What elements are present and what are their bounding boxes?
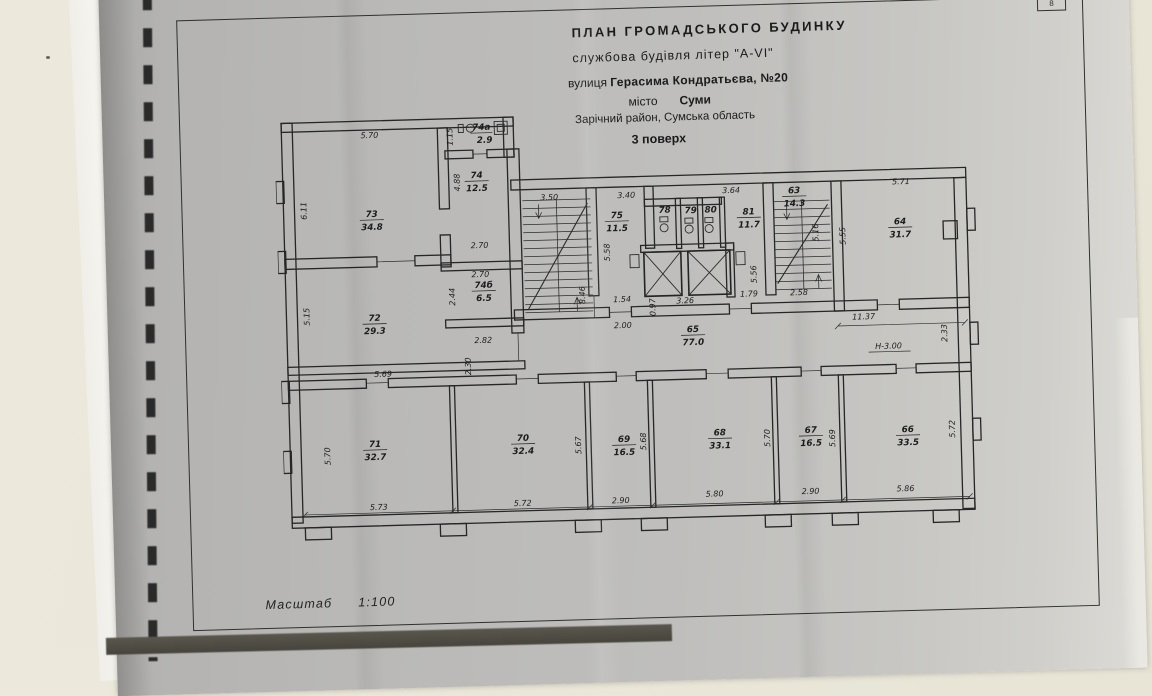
dim-label: 5.86 xyxy=(896,484,914,493)
dim-label: 2.82 xyxy=(474,336,492,345)
room-area: 11.7 xyxy=(738,220,761,231)
room-area: 31.7 xyxy=(889,230,912,241)
dim-label: 4.88 xyxy=(453,174,462,192)
room-area: 32.4 xyxy=(512,447,534,458)
toilet-icon xyxy=(660,217,668,232)
dim-label: 2.90 xyxy=(612,496,630,505)
room-number: 63 xyxy=(788,186,801,196)
dim-label: 2.33 xyxy=(940,324,949,342)
dim-label: 5.67 xyxy=(574,435,584,454)
paper-edge-curl xyxy=(1114,318,1148,669)
dim-label: 1.79 xyxy=(740,289,758,298)
room-area: 16.5 xyxy=(613,448,635,459)
dim-label: 5.71 xyxy=(892,177,910,186)
city-label: місто xyxy=(628,94,657,109)
toilet-icon xyxy=(685,218,693,233)
dim-label: 5.56 xyxy=(749,265,758,283)
room-number: 75 xyxy=(611,211,624,221)
dim-label: 5.70 xyxy=(323,447,332,465)
dim-label: 5.69 xyxy=(828,429,837,447)
dim-label: 5.15 xyxy=(302,308,311,326)
height-mark: Н-3.00 xyxy=(875,341,902,351)
dim-label: 3.64 xyxy=(722,186,740,195)
dim-label: 5.55 xyxy=(838,227,847,245)
dim-label: 5.70 xyxy=(763,429,772,447)
room-area: 14.3 xyxy=(784,199,806,210)
dim-label: 8.46 xyxy=(578,286,587,304)
drawing-border-frame: 8 xyxy=(176,0,1100,631)
room-number: 80 xyxy=(704,205,717,215)
dim-label: 2.70 xyxy=(470,241,488,250)
scale-label: Масштаб xyxy=(265,596,332,612)
room-number: 65 xyxy=(687,325,700,335)
street-line: вулиця Герасима Кондратьєва, №20 xyxy=(568,70,788,90)
elevator-shaft-right xyxy=(688,250,731,295)
toilet-icon xyxy=(705,217,713,232)
sheet-number-box: 8 xyxy=(1037,0,1066,11)
room-number: 71 xyxy=(369,440,382,450)
dim-label: 5.16 xyxy=(811,224,820,242)
district-line: Зарічний район, Сумська область xyxy=(575,109,755,126)
dim-label: 3.26 xyxy=(676,296,694,305)
dim-label: 5.58 xyxy=(603,243,612,261)
scanned-floorplan-sheet: 8 ПЛАН ГРОМАДСЬКОГО БУДИНКУ службова буд… xyxy=(98,0,1147,696)
dim-label: 5.73 xyxy=(370,503,388,512)
dust-speck xyxy=(46,56,50,59)
street-label: вулиця xyxy=(568,75,607,90)
dim-label: 2.44 xyxy=(448,288,457,306)
room-area: 6.5 xyxy=(476,294,492,304)
dim-label: 3.50 xyxy=(540,193,558,202)
room-area: 33.1 xyxy=(709,441,731,452)
room-number: 72 xyxy=(368,314,381,324)
dim-label: 1.15 xyxy=(445,128,454,146)
dim-label: 2.30 xyxy=(464,357,473,375)
walls xyxy=(274,104,983,540)
room-number: 69 xyxy=(618,435,631,445)
stairs-left xyxy=(522,199,593,313)
dim-label: 5.68 xyxy=(639,432,648,450)
room-number: 74а xyxy=(472,123,491,134)
room-area: 29.3 xyxy=(364,327,386,338)
dim-label: 6.11 xyxy=(299,202,308,220)
dim-label: 5.69 xyxy=(374,369,392,378)
dim-label: 2.70 xyxy=(471,270,489,279)
room-area: 77.0 xyxy=(682,338,704,349)
plan-title: ПЛАН ГРОМАДСЬКОГО БУДИНКУ xyxy=(571,18,847,41)
dim-label: 0.97 xyxy=(648,297,658,316)
door-leaf-icon xyxy=(736,252,745,265)
stairs-right xyxy=(773,200,831,290)
room-area: 34.8 xyxy=(361,223,383,234)
dim-label: 5.72 xyxy=(514,499,532,508)
dim-label: 2.90 xyxy=(801,487,819,496)
room-area: 12.5 xyxy=(466,184,488,195)
room-number: 67 xyxy=(805,426,818,436)
scale-value: 1:100 xyxy=(358,594,396,609)
room-number: 81 xyxy=(742,207,755,217)
floor-line: 3 поверх xyxy=(631,131,686,147)
dim-label: 5.80 xyxy=(706,489,724,498)
room-number: 70 xyxy=(517,434,530,444)
building-subtitle: службова будівля літер "А-VI" xyxy=(572,46,774,66)
door-openings xyxy=(360,142,916,383)
room-area: 2.9 xyxy=(477,136,493,146)
sink-icon xyxy=(494,121,507,134)
dim-label: 1.54 xyxy=(613,295,631,304)
room-number: 64 xyxy=(894,217,907,227)
city-value: Суми xyxy=(679,92,711,107)
room-number: 66 xyxy=(902,425,915,435)
elevator-shaft-left xyxy=(644,251,682,296)
room-number: 73 xyxy=(365,210,378,220)
dimension-labels: 5.70 6.11 1.15 4.88 2.70 2.70 2.44 2.82 … xyxy=(297,114,958,514)
room-area: 33.5 xyxy=(897,438,919,449)
dim-label: 11.37 xyxy=(852,312,876,322)
dim-label: 3.40 xyxy=(617,191,635,200)
room-number: 74б xyxy=(474,280,493,292)
room-area: 16.5 xyxy=(800,438,822,449)
room-area: 32.7 xyxy=(364,453,387,464)
toilet-icon xyxy=(458,124,474,132)
dim-label: 2.00 xyxy=(614,321,632,330)
room-number: 79 xyxy=(684,206,697,216)
dim-label: 2.58 xyxy=(790,288,808,297)
room-number: 74 xyxy=(470,171,483,181)
room-number: 78 xyxy=(658,206,671,216)
dimension-lines xyxy=(297,319,973,518)
binding-dash-marks xyxy=(143,0,158,661)
floor-plan-drawing: 73 34.8 74а 2.9 74 12.5 74б 6.5 72 29.3 … xyxy=(274,100,997,590)
dim-label: 5.70 xyxy=(360,131,378,140)
door-leaf-icon xyxy=(630,255,639,268)
room-labels: 73 34.8 74а 2.9 74 12.5 74б 6.5 72 29.3 … xyxy=(354,111,920,465)
street-value: Герасима Кондратьєва, №20 xyxy=(610,70,788,89)
city-line: містоСуми xyxy=(628,92,711,108)
sheet-number: 8 xyxy=(1049,0,1054,7)
room-number: 68 xyxy=(714,428,727,438)
dim-label: 5.72 xyxy=(948,420,957,438)
scale-caption: Масштаб1:100 xyxy=(265,594,421,612)
room-area: 11.5 xyxy=(606,224,628,235)
